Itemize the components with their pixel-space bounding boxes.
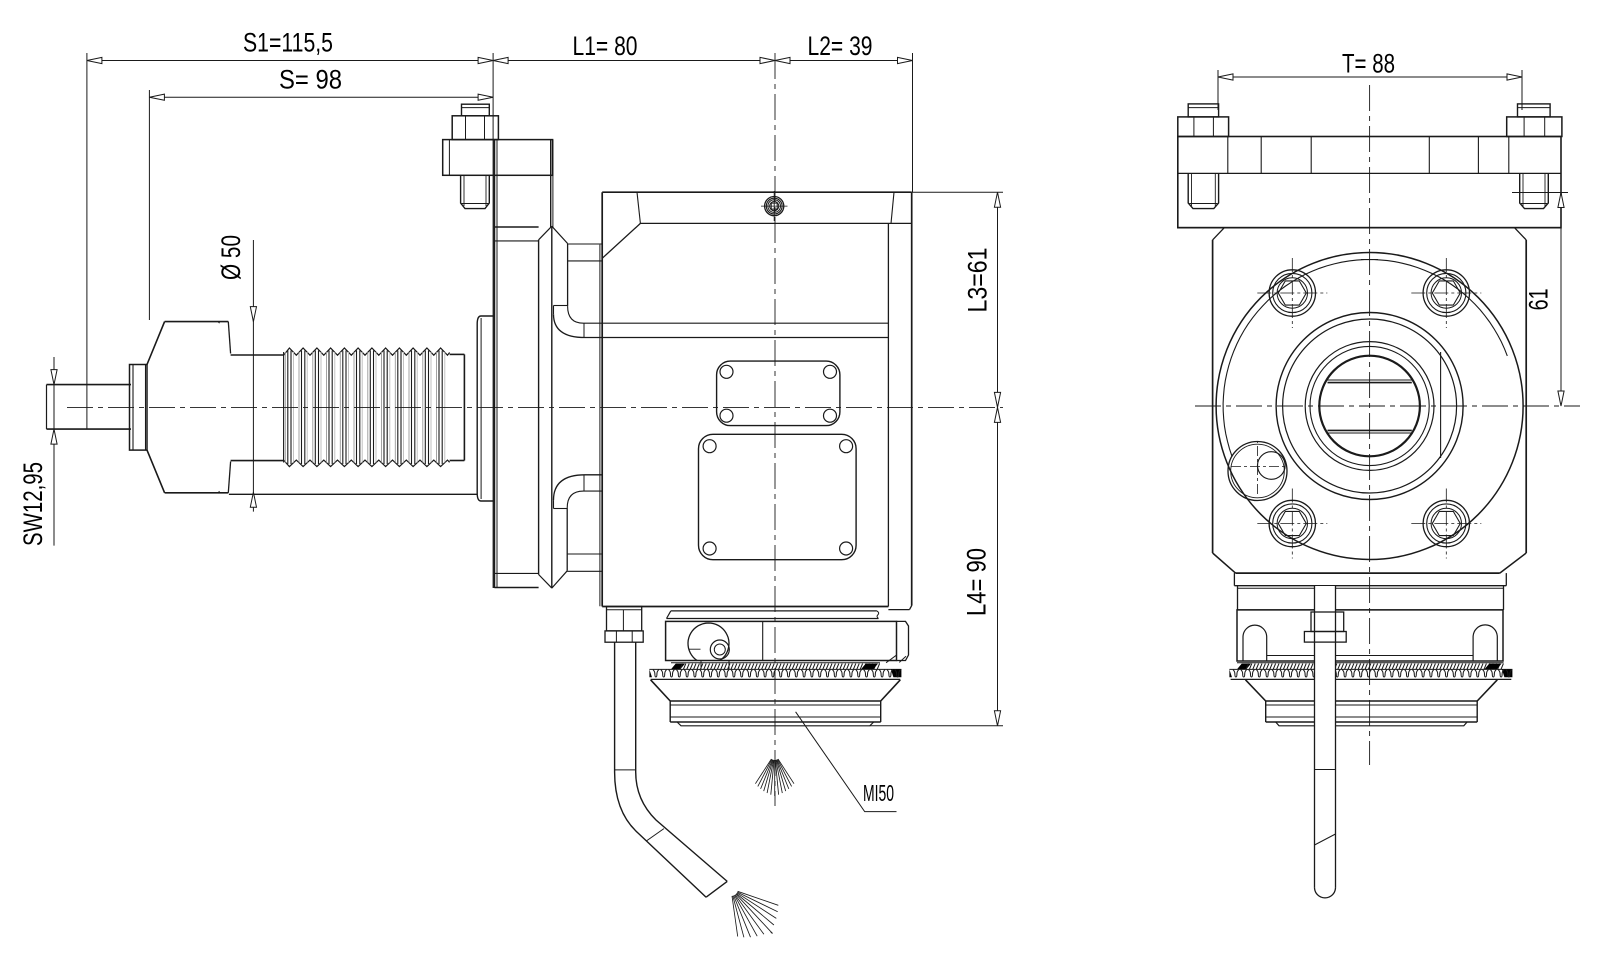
svg-text:L3=61: L3=61 xyxy=(963,248,993,313)
svg-text:S= 98: S= 98 xyxy=(279,65,342,95)
svg-text:MI50: MI50 xyxy=(863,780,894,806)
svg-text:S1=115,5: S1=115,5 xyxy=(243,28,333,58)
svg-text:L1= 80: L1= 80 xyxy=(573,31,638,61)
svg-text:L4= 90: L4= 90 xyxy=(962,548,992,616)
svg-text:SW12,95: SW12,95 xyxy=(18,462,48,546)
svg-text:T= 88: T= 88 xyxy=(1342,49,1395,79)
svg-text:61: 61 xyxy=(1524,288,1554,310)
svg-text:Ø 50: Ø 50 xyxy=(216,235,246,280)
svg-text:L2= 39: L2= 39 xyxy=(808,31,873,61)
